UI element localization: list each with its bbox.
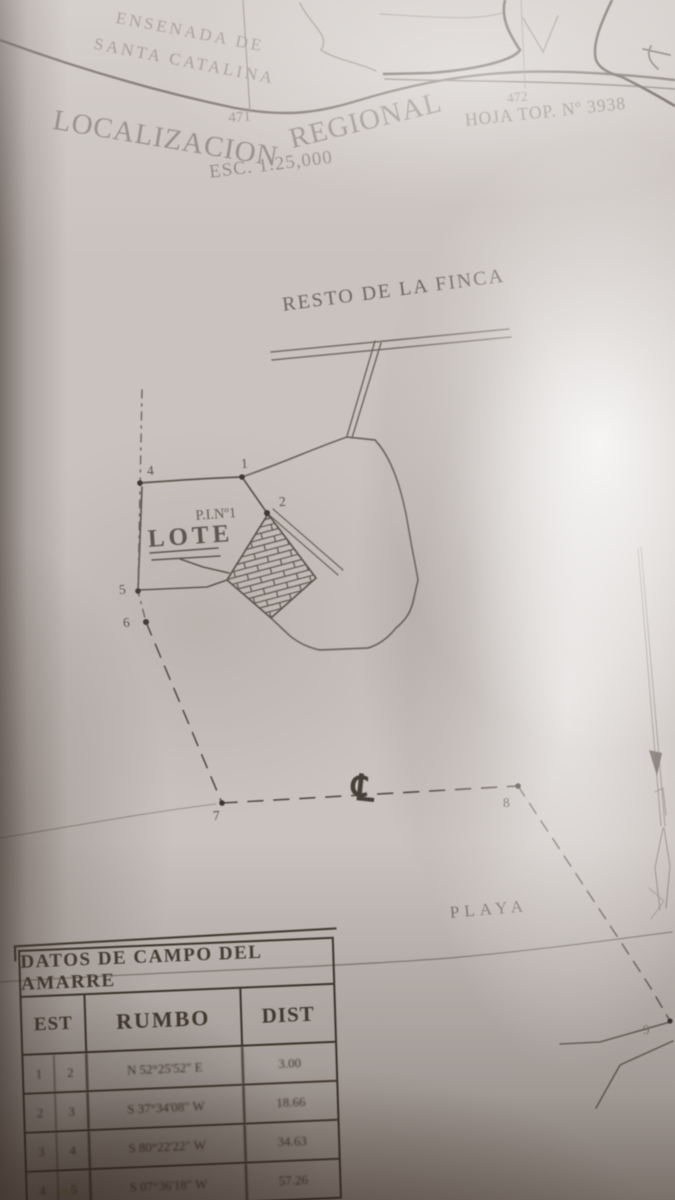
survey-plan-photo: ENSENADA DE SANTA CATALINA 471 472 LOCAL… — [0, 0, 675, 1200]
station-label-5: 5 — [118, 582, 126, 598]
traverse-8-9 — [518, 786, 670, 1021]
est-to-cell: 4 — [57, 1131, 91, 1169]
station-label-4: 4 — [146, 463, 154, 479]
rumbo-cell: S 37°34'08" W — [89, 1086, 246, 1130]
traverse-6-7 — [146, 622, 222, 803]
station-label-1: 1 — [240, 456, 248, 472]
est-from-cell: 4 — [27, 1172, 59, 1200]
gridline-472 — [521, 0, 525, 88]
dist-cell: 3.00 — [243, 1043, 336, 1084]
faint-top-line — [380, 13, 502, 18]
est-to-cell: 2 — [54, 1053, 88, 1091]
north-arrow — [638, 547, 670, 919]
river-line — [384, 0, 520, 74]
lote-label: LOTE — [147, 520, 234, 554]
dist-cell: 18.66 — [244, 1082, 337, 1123]
est-from-cell: 2 — [25, 1094, 57, 1132]
photo-artifact-speck — [56, 1186, 74, 1197]
column-header-rumbo: RUMBO — [85, 989, 243, 1052]
monument-diamond-hatch — [227, 514, 316, 618]
est-from-cell: 1 — [23, 1055, 55, 1093]
rumbo-cell: S 80°22'22" W — [90, 1125, 247, 1169]
station-label-2: 2 — [278, 494, 286, 510]
dist-cell: 34.63 — [246, 1121, 339, 1162]
dist-cell: 57.26 — [247, 1160, 340, 1200]
bottom-right-line-a — [560, 1022, 670, 1044]
grid-number-left: 471 — [228, 109, 251, 127]
faint-line-to-7 — [0, 804, 216, 838]
resto-leader — [347, 341, 381, 438]
bottom-right-line-b — [596, 1041, 673, 1108]
lote-leader — [180, 559, 229, 573]
stream-squiggle — [300, 3, 376, 71]
column-header-dist: DIST — [241, 985, 335, 1045]
resto-underline — [271, 329, 511, 360]
amarre-data-table: DATOS DE CAMPO DEL AMARRE EST RUMBO DIST… — [18, 937, 342, 1200]
column-header-est: EST — [22, 995, 88, 1054]
gridline-471 — [243, 0, 250, 112]
est-to-cell: 3 — [56, 1092, 90, 1130]
station-label-9: 9 — [642, 1022, 650, 1038]
rumbo-cell: S 07°36'18" W — [91, 1164, 248, 1200]
regional-map-lines — [0, 0, 675, 113]
station-label-7: 7 — [212, 808, 220, 824]
station-label-6: 6 — [122, 615, 130, 631]
station-label-8: 8 — [502, 795, 510, 811]
rumbo-cell: N 52°25'52" E — [87, 1047, 244, 1091]
stream-v — [523, 16, 558, 52]
road-branch — [643, 46, 670, 69]
centerline-symbol: ℄ — [350, 766, 377, 810]
lot-bottom-edge — [139, 580, 227, 590]
est-from-cell: 3 — [26, 1133, 58, 1171]
